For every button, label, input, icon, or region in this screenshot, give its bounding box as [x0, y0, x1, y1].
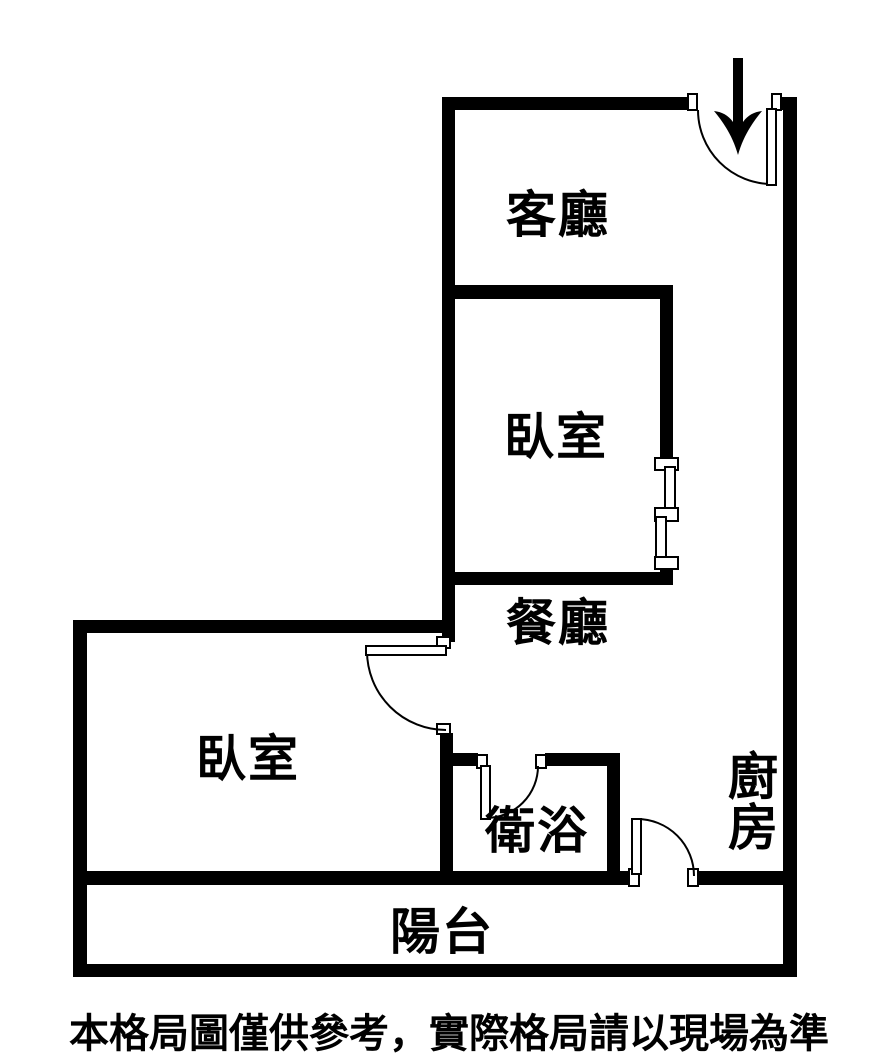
kitchen-door-arc: [637, 819, 694, 876]
kitchen-label: 廚房: [727, 752, 779, 854]
bedroom-door-leaf: [366, 646, 446, 655]
bedroom-lower-label: 臥室: [196, 734, 300, 784]
bathroom-label: 衛浴: [485, 806, 589, 856]
entry-door-post-left: [688, 94, 697, 110]
dining-room-label: 餐廳: [506, 598, 610, 648]
balcony-label: 陽台: [390, 907, 494, 957]
floorplan-canvas: 客廳 臥室 餐廳 臥室 衛浴 廚房 陽台 本格局圖僅供參考，實際格局請以現場為準: [0, 0, 889, 1062]
entrance-arrow-icon: [714, 58, 762, 155]
entry-door-leaf: [767, 109, 776, 185]
disclaimer-text: 本格局圖僅供參考，實際格局請以現場為準: [69, 1001, 829, 1059]
bedroom-upper-label: 臥室: [504, 412, 608, 462]
sliding-door-cap-bottom: [655, 557, 678, 569]
kitchen-door-leaf: [632, 819, 641, 874]
bedroom-door-arc: [367, 651, 446, 730]
living-room-label: 客廳: [506, 190, 610, 240]
sliding-door-panel-left: [656, 517, 666, 562]
entry-door-post-right: [772, 94, 781, 110]
sliding-door-panel-right: [665, 467, 675, 513]
